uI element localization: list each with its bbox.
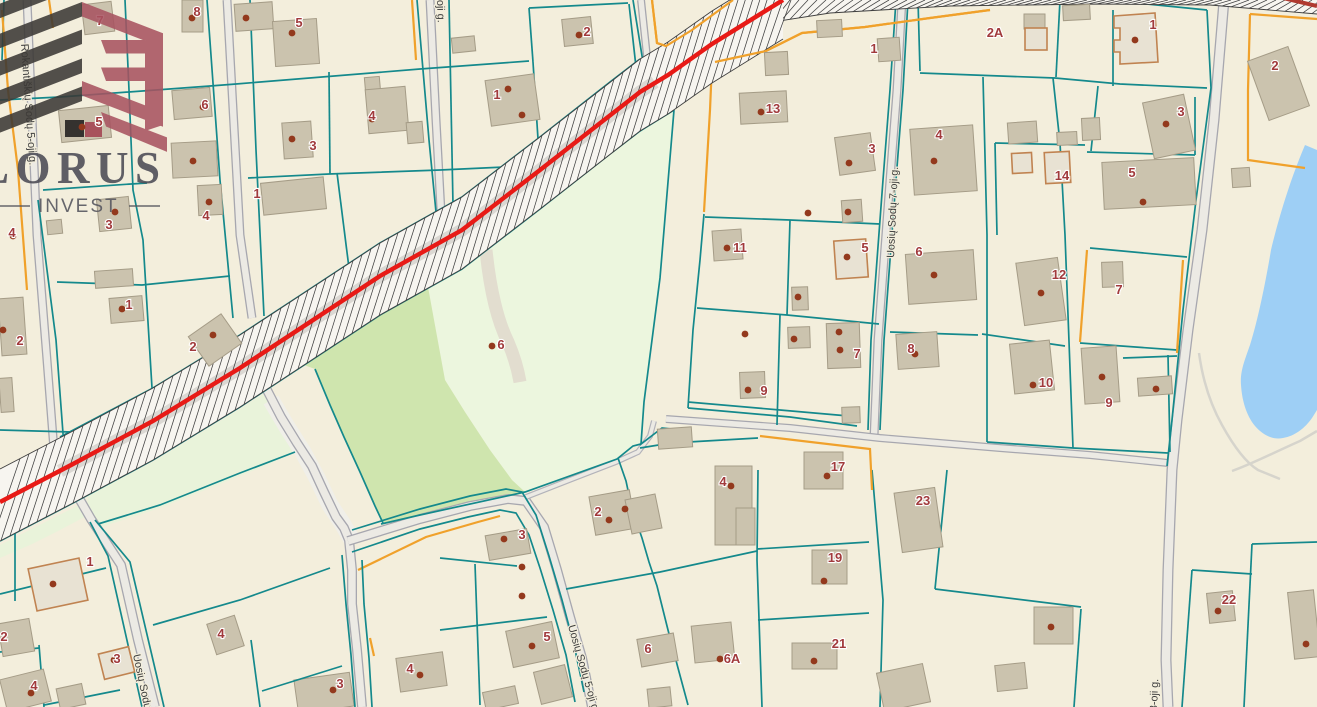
svg-text:LORUS: LORUS bbox=[0, 143, 167, 193]
svg-text:2: 2 bbox=[1271, 58, 1278, 73]
svg-text:3: 3 bbox=[336, 676, 343, 691]
svg-text:8: 8 bbox=[907, 341, 914, 356]
svg-text:2: 2 bbox=[583, 24, 590, 39]
svg-text:5: 5 bbox=[95, 114, 102, 129]
svg-text:3: 3 bbox=[105, 217, 112, 232]
svg-text:2A: 2A bbox=[987, 25, 1004, 40]
svg-text:9: 9 bbox=[1105, 395, 1112, 410]
svg-text:INVEST: INVEST bbox=[38, 196, 119, 217]
svg-text:4: 4 bbox=[935, 127, 943, 142]
svg-text:23: 23 bbox=[916, 493, 930, 508]
svg-text:5: 5 bbox=[543, 629, 550, 644]
svg-text:4: 4 bbox=[8, 225, 16, 240]
svg-text:1: 1 bbox=[493, 87, 500, 102]
svg-text:4: 4 bbox=[719, 474, 727, 489]
svg-text:14: 14 bbox=[1055, 168, 1070, 183]
svg-text:6: 6 bbox=[201, 97, 208, 112]
svg-text:17: 17 bbox=[831, 459, 845, 474]
svg-text:1: 1 bbox=[125, 297, 132, 312]
svg-text:1: 1 bbox=[86, 554, 93, 569]
svg-text:2: 2 bbox=[16, 333, 23, 348]
svg-text:1: 1 bbox=[1149, 17, 1156, 32]
svg-text:21: 21 bbox=[832, 636, 846, 651]
svg-text:2: 2 bbox=[189, 339, 196, 354]
svg-text:oji g.: oji g. bbox=[434, 0, 447, 23]
svg-text:6: 6 bbox=[915, 244, 922, 259]
svg-text:9: 9 bbox=[760, 383, 767, 398]
svg-text:13: 13 bbox=[766, 101, 780, 116]
svg-text:3: 3 bbox=[518, 527, 525, 542]
svg-text:6A: 6A bbox=[724, 651, 741, 666]
svg-text:1: 1 bbox=[870, 41, 877, 56]
svg-text:3: 3 bbox=[868, 141, 875, 156]
svg-text:5: 5 bbox=[1128, 165, 1135, 180]
svg-text:4: 4 bbox=[202, 208, 210, 223]
svg-text:5: 5 bbox=[295, 15, 302, 30]
svg-text:22: 22 bbox=[1222, 592, 1236, 607]
svg-text:7: 7 bbox=[853, 346, 860, 361]
svg-text:11: 11 bbox=[733, 240, 747, 255]
svg-text:1: 1 bbox=[253, 186, 260, 201]
svg-text:3: 3 bbox=[309, 138, 316, 153]
svg-text:4: 4 bbox=[368, 108, 376, 123]
svg-text:8: 8 bbox=[193, 4, 200, 19]
svg-text:5: 5 bbox=[861, 240, 868, 255]
svg-text:7: 7 bbox=[1115, 282, 1122, 297]
svg-text:19: 19 bbox=[828, 550, 842, 565]
svg-text:4: 4 bbox=[30, 678, 38, 693]
svg-text:Uosių Sodų 8-oji g.: Uosių Sodų 8-oji g. bbox=[1146, 679, 1161, 707]
svg-text:2: 2 bbox=[594, 504, 601, 519]
svg-text:4: 4 bbox=[406, 661, 414, 676]
svg-text:4: 4 bbox=[217, 626, 225, 641]
svg-text:6: 6 bbox=[497, 337, 504, 352]
svg-text:10: 10 bbox=[1039, 375, 1053, 390]
svg-text:6: 6 bbox=[644, 641, 651, 656]
svg-text:12: 12 bbox=[1052, 267, 1066, 282]
svg-text:3: 3 bbox=[1177, 104, 1184, 119]
svg-text:2: 2 bbox=[0, 629, 7, 644]
svg-text:3: 3 bbox=[113, 651, 120, 666]
